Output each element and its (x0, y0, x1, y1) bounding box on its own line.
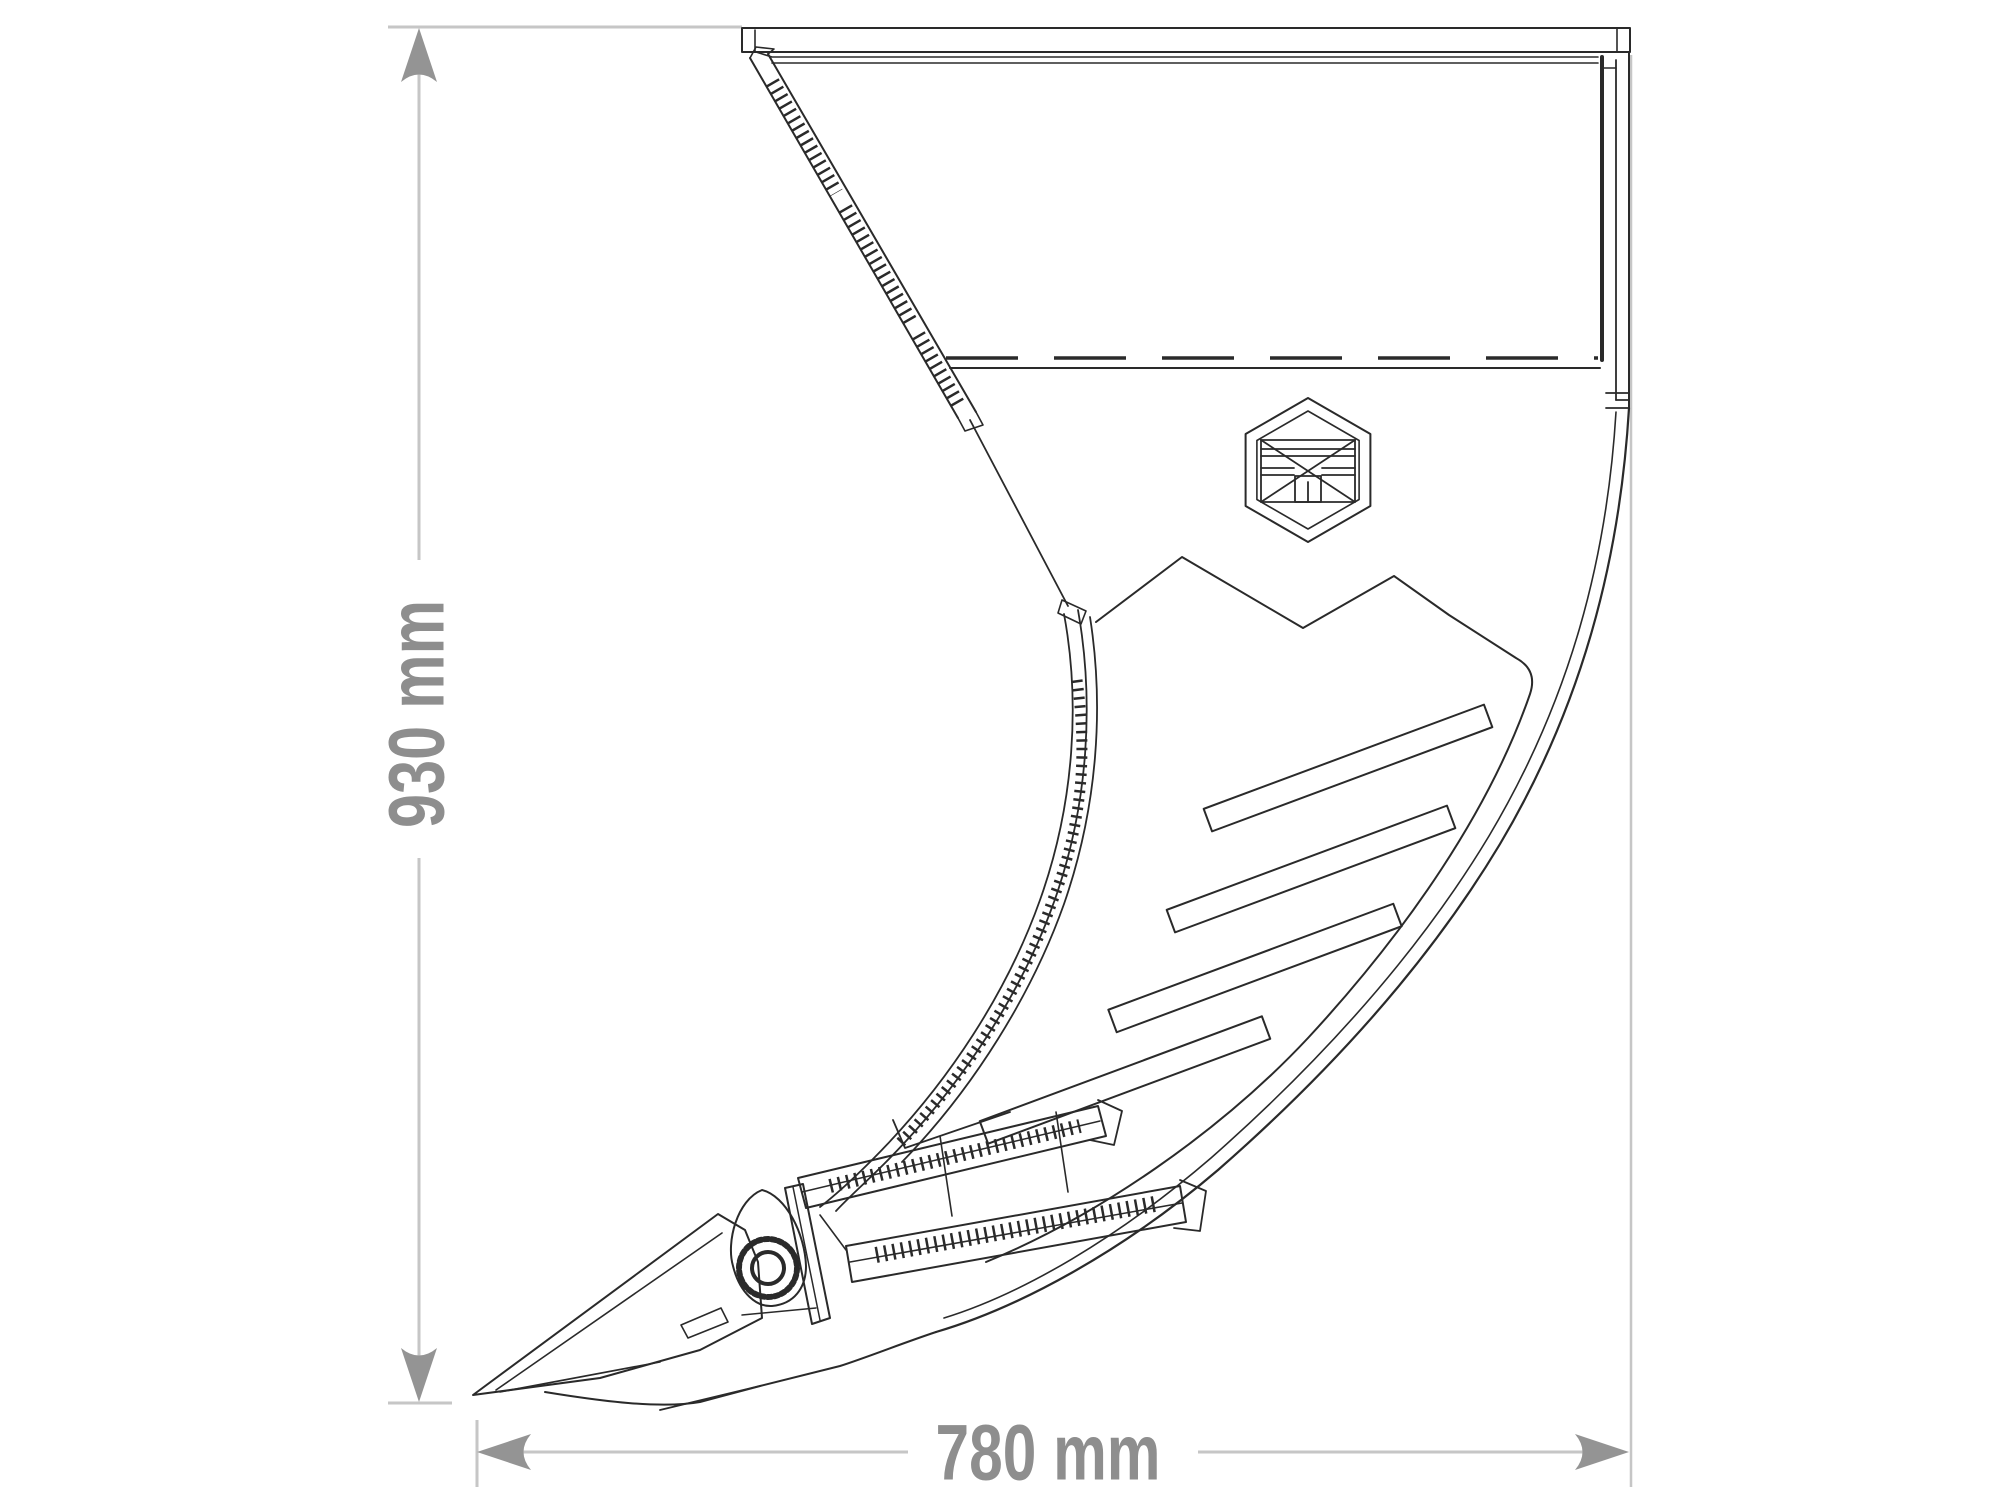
tooth-assembly (473, 1100, 1206, 1410)
retaining-pin (752, 1252, 784, 1284)
arrow-up-icon (401, 28, 437, 82)
logo-emblem (1261, 440, 1355, 502)
shank-left-edge (970, 420, 1068, 606)
shank-bottom-edge (545, 1332, 936, 1405)
dimension-diagram: 930 mm 780 mm (0, 0, 2016, 1512)
brand-logo-icon (1246, 398, 1371, 542)
pin-boss (731, 1190, 806, 1306)
strut-hatching (772, 82, 836, 193)
height-dimension-label: 930 mm (372, 600, 461, 828)
shank-edge-cap (1058, 600, 1086, 624)
strut-hatching (918, 335, 960, 408)
dimension-lines (388, 27, 1631, 1487)
convex-outer-edge (936, 408, 1629, 1332)
stump-ripper-technical-drawing: 930 mm 780 mm (0, 0, 2016, 1512)
ripper-tooth (473, 1214, 762, 1395)
dimension-annotations: 930 mm 780 mm (372, 27, 1632, 1497)
tread-plate-outline (986, 557, 1532, 1262)
concave-edge-band (820, 610, 1097, 1211)
arrow-down-icon (401, 1348, 437, 1402)
top-mounting-plate (742, 28, 1630, 63)
arrow-right-icon (1575, 1434, 1629, 1470)
right-bracket-strip (1602, 52, 1629, 408)
holder-strap-upper (798, 1100, 1122, 1208)
strut-hatching (845, 208, 910, 321)
left-diagonal-strut (750, 47, 983, 431)
arrow-left-icon (477, 1434, 531, 1470)
holder-strap-lower (846, 1180, 1206, 1282)
pin-collar (739, 1239, 797, 1297)
edge-band-hatching (900, 680, 1082, 1143)
ripper-part-drawing (473, 28, 1630, 1410)
width-dimension-label: 780 mm (936, 1408, 1161, 1497)
